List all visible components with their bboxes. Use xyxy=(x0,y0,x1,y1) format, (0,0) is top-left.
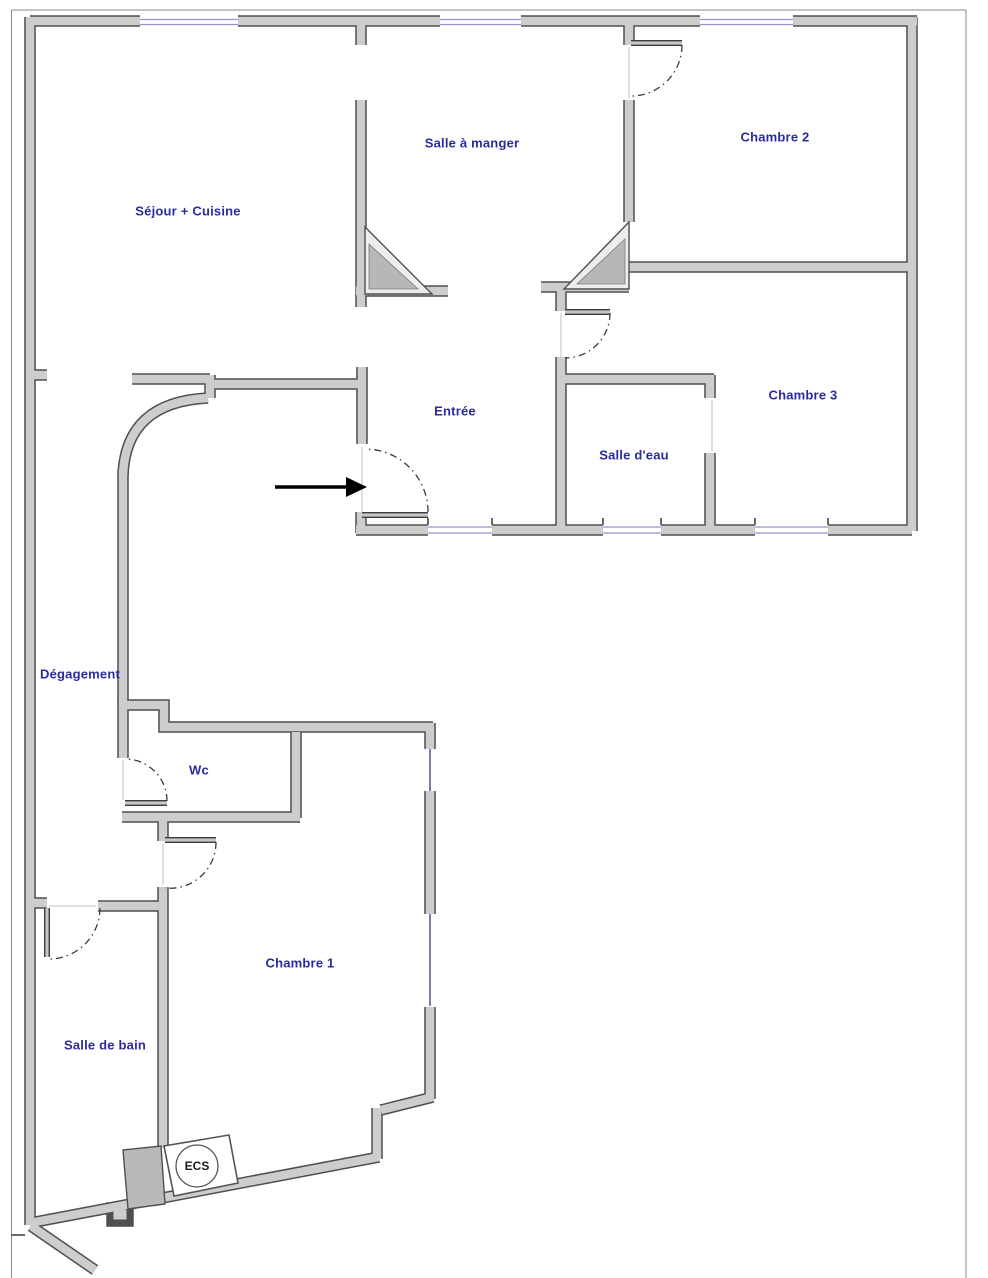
duct-shaft xyxy=(123,1146,165,1209)
room-label-chambre-3: Chambre 3 xyxy=(769,388,838,403)
window-south-wall xyxy=(428,518,828,533)
room-label-sejour-cuisine: Séjour + Cuisine xyxy=(135,204,240,219)
room-label-salle-a-manger: Salle à manger xyxy=(425,136,520,151)
room-label-entree: Entrée xyxy=(434,404,476,419)
corner-post-salle-a-manger xyxy=(365,227,432,294)
entrance-arrow xyxy=(275,477,367,497)
floor-plan: Séjour + Cuisine Salle à manger Chambre … xyxy=(0,0,988,1278)
door-thresholds xyxy=(49,47,712,906)
drawing-border xyxy=(11,10,966,1278)
room-label-salle-deau: Salle d'eau xyxy=(599,448,669,463)
ecs-label: ECS xyxy=(185,1159,210,1173)
room-label-wc: Wc xyxy=(189,763,209,778)
room-label-chambre-1: Chambre 1 xyxy=(266,956,335,971)
room-label-chambre-2: Chambre 2 xyxy=(741,130,810,145)
floor-plan-drawing xyxy=(0,0,988,1278)
room-label-salle-de-bain: Salle de bain xyxy=(64,1038,146,1053)
corner-post-chambre-2 xyxy=(564,222,629,289)
room-label-degagement: Dégagement xyxy=(40,667,120,682)
